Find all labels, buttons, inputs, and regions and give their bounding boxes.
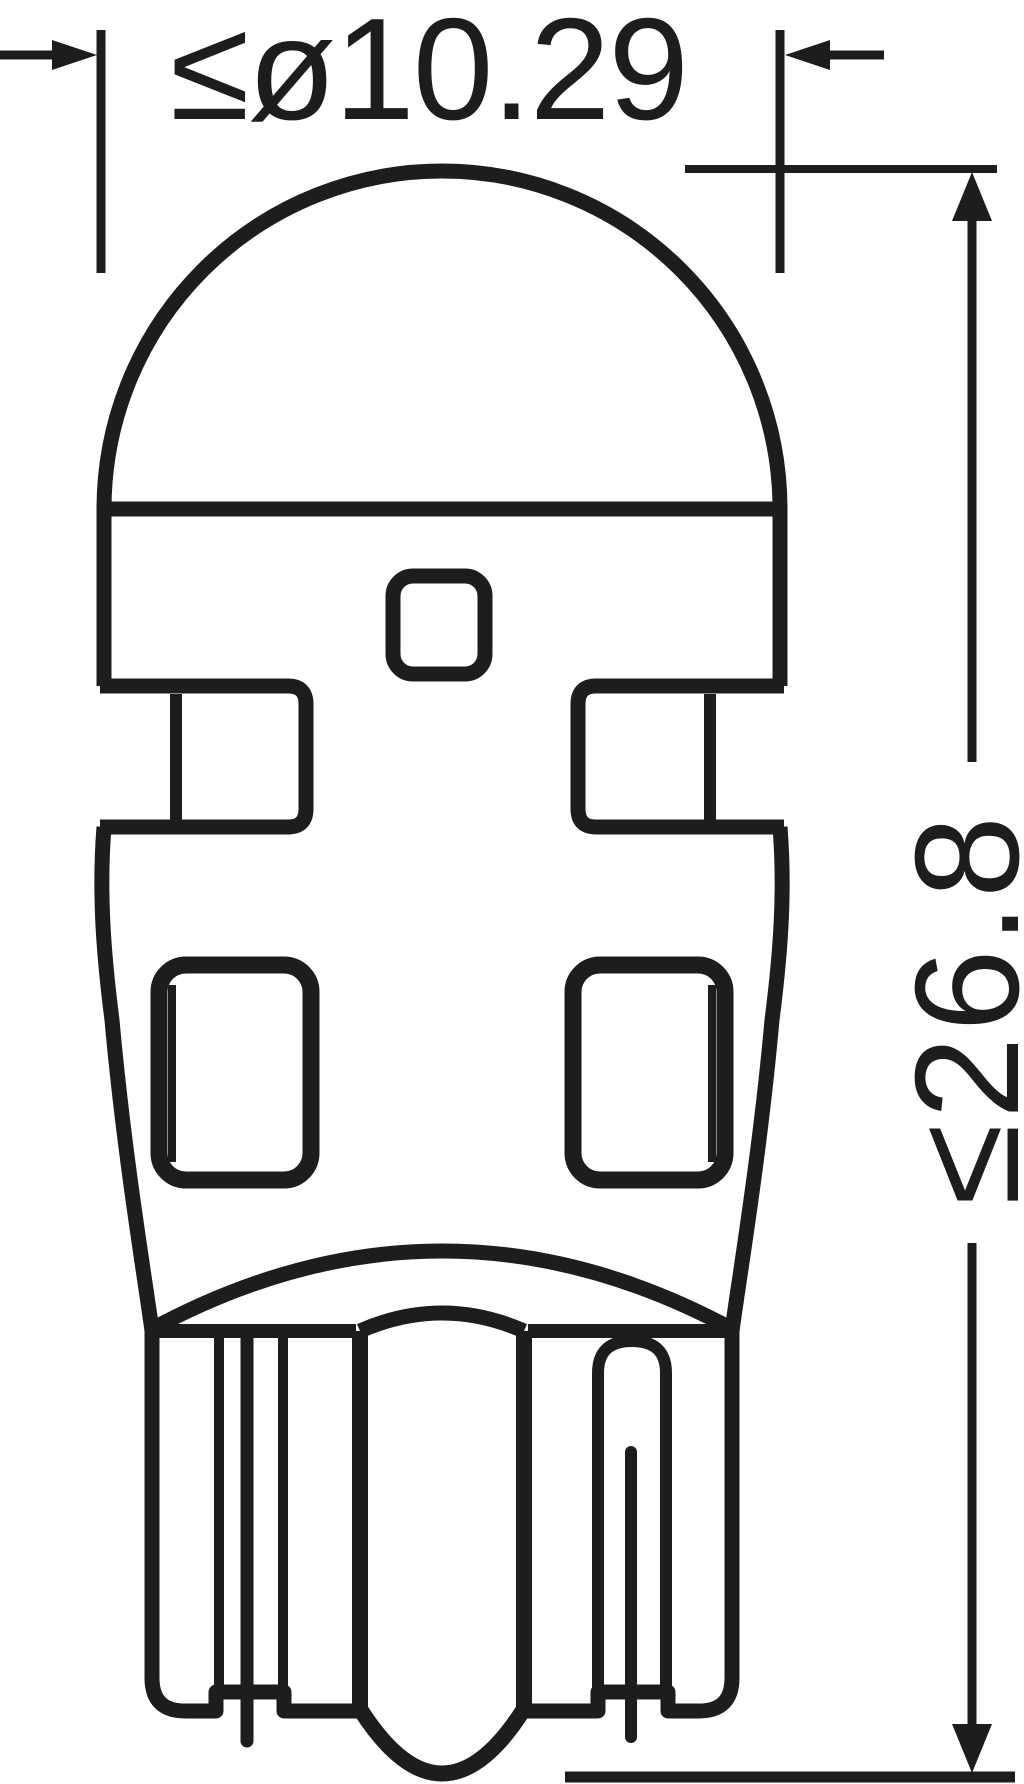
height-dimension-label: ≤26.8 <box>885 811 1024 1205</box>
led-window-right <box>573 965 725 1180</box>
taper-side-right <box>732 827 782 1331</box>
wedge-base <box>150 1251 734 1774</box>
height-arrow-down-icon <box>952 1724 992 1773</box>
bulb-technical-drawing: ≤ø10.29 ≤26.8 <box>0 0 1024 1784</box>
base-outline-left <box>152 1331 361 1711</box>
dome-outline <box>104 171 780 509</box>
led-window-left <box>159 965 311 1180</box>
diameter-arrow-left-icon <box>52 40 97 70</box>
diameter-dimension-label: ≤ø10.29 <box>170 0 687 150</box>
diameter-arrow-right-icon <box>785 40 830 70</box>
glass-column-bottom-dome <box>360 1709 524 1774</box>
vent-square-detail <box>393 576 485 674</box>
dimension-diameter: ≤ø10.29 <box>0 0 884 273</box>
technical-drawing-page: ≤ø10.29 ≤26.8 <box>0 0 1024 1784</box>
tab-right <box>578 686 784 827</box>
tab-left <box>100 686 306 827</box>
bulb-outline <box>97 171 787 1331</box>
taper-side-left <box>102 827 152 1331</box>
height-arrow-up-icon <box>952 172 992 221</box>
glass-column-arch <box>360 1313 524 1331</box>
